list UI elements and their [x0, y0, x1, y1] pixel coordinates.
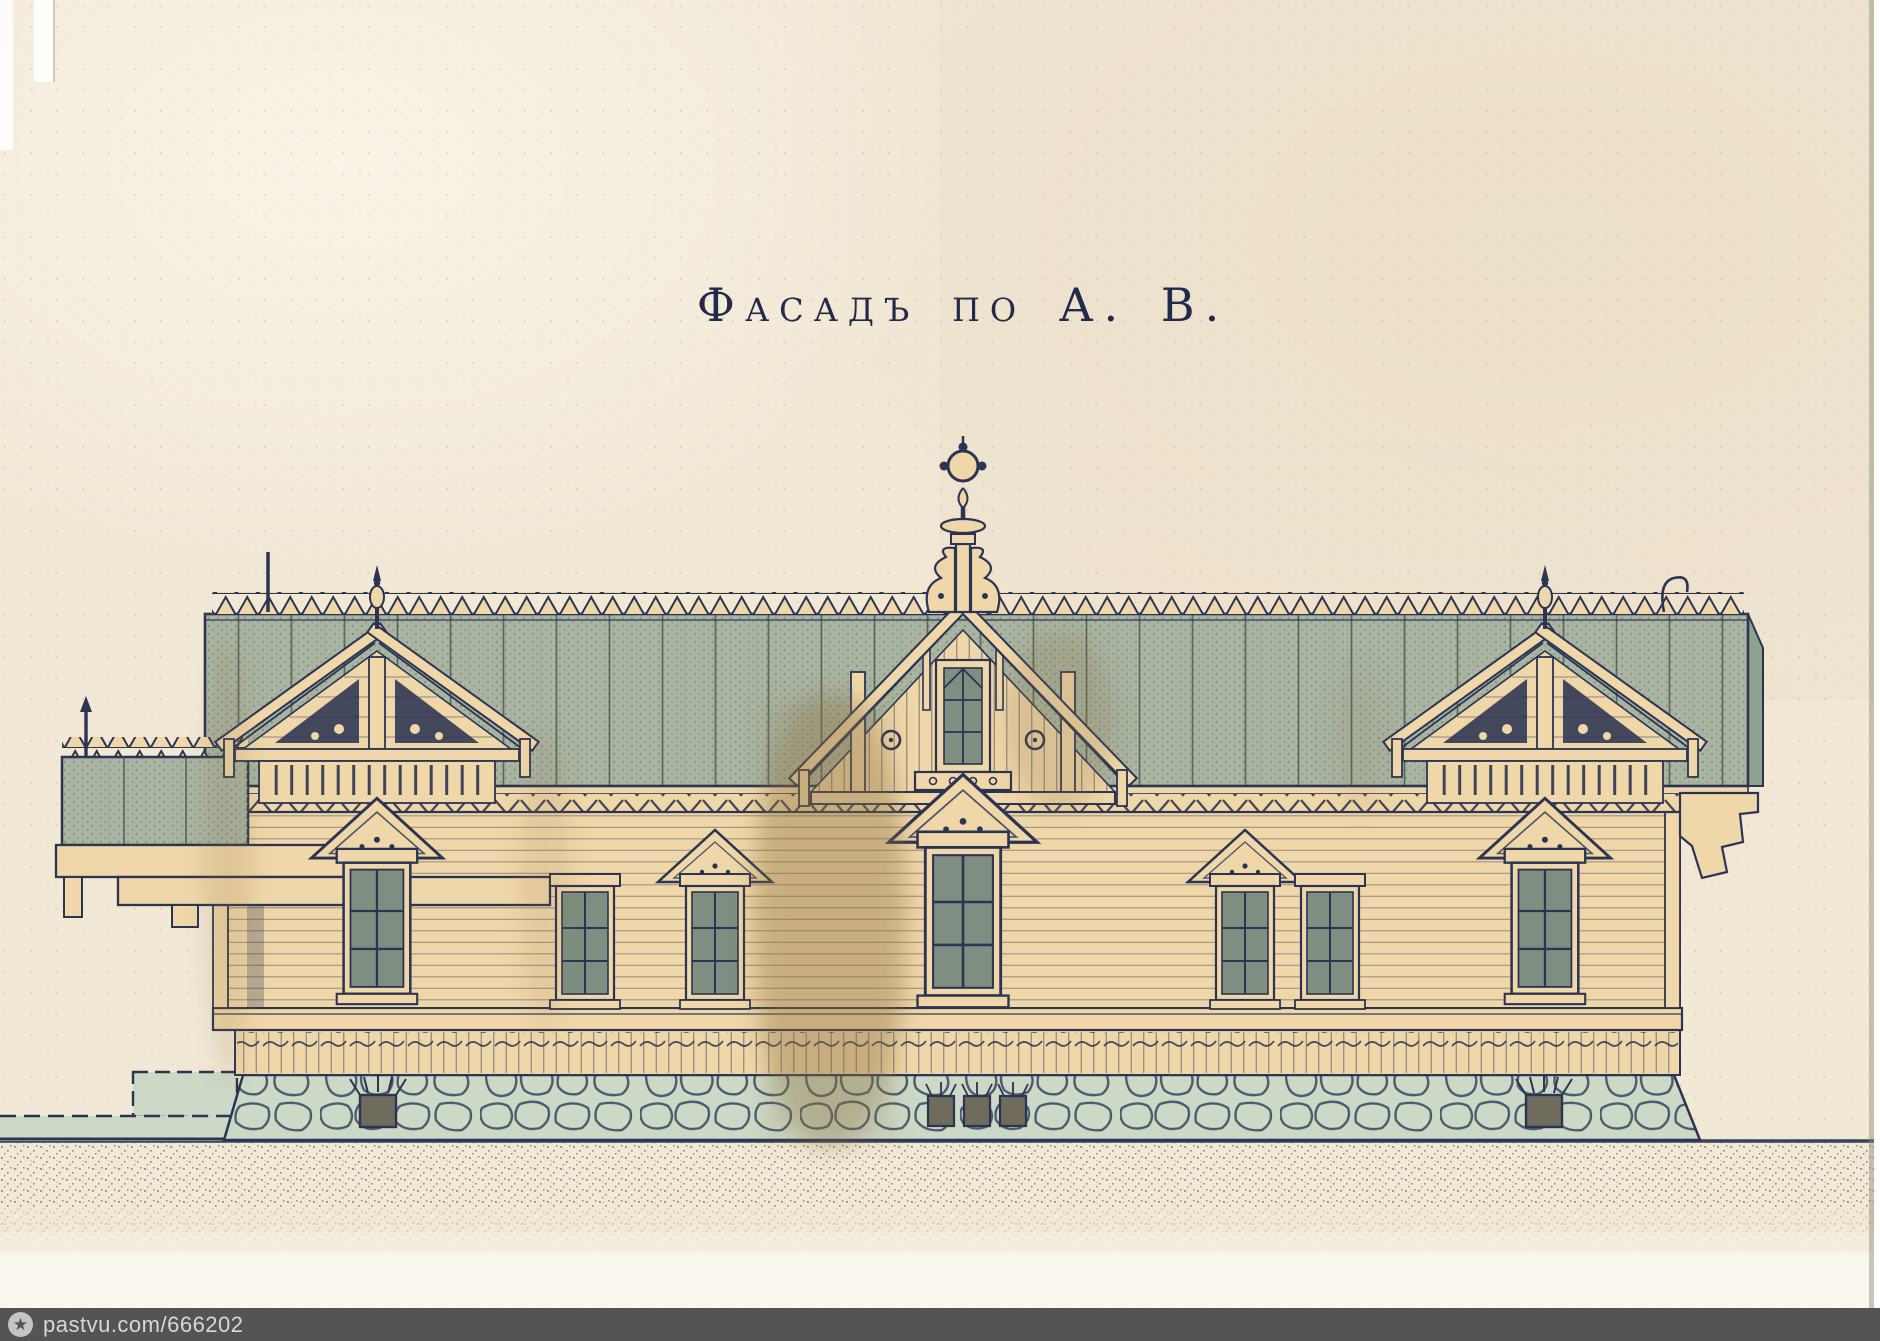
window-plain-right	[1295, 874, 1365, 1009]
star-icon: ★	[8, 1312, 33, 1337]
watermark-text: pastvu.com/666202	[43, 1312, 244, 1338]
drawing-caption: Фасадъ по А. В.	[697, 278, 1229, 332]
plinth-skirt	[235, 1030, 1680, 1075]
basement-vents-center	[926, 1082, 1028, 1126]
window-sill-band	[213, 1008, 1682, 1030]
facade-elevation-drawing	[0, 0, 1880, 1341]
watermark-bar: ★ pastvu.com/666202	[0, 1308, 1880, 1341]
scanned-drawing-page: Фасадъ по А. В. ★ pastvu.com/666202	[0, 0, 1880, 1341]
attic-window	[936, 660, 990, 772]
stone-foundation	[200, 1070, 1720, 1145]
